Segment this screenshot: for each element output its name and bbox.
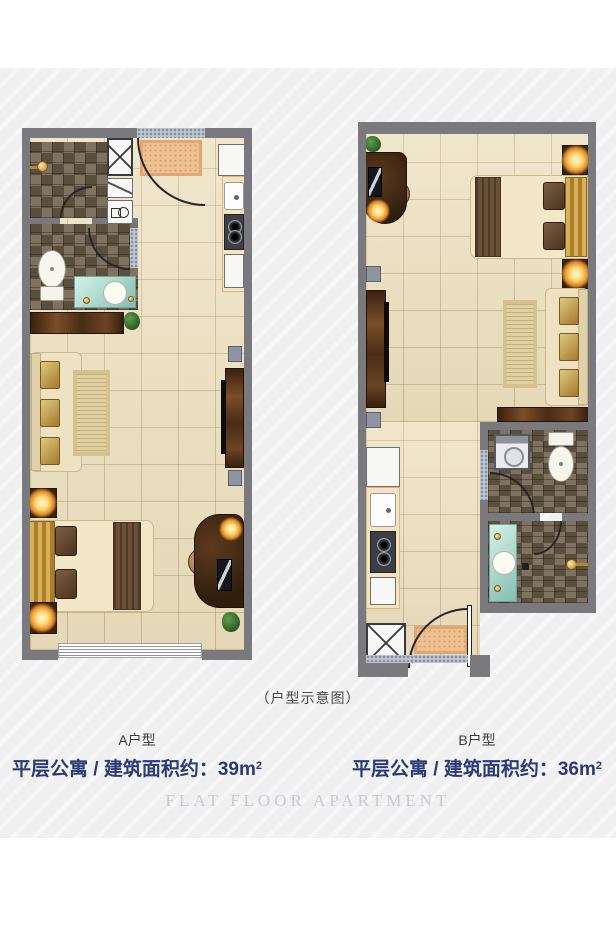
pillow-icon xyxy=(55,526,77,556)
pillow-icon xyxy=(559,369,579,397)
wall xyxy=(244,128,252,660)
unit-b-area-sup: 2 xyxy=(596,760,602,772)
footer-title: FLAT FLOOR APARTMENT xyxy=(0,791,616,811)
wall xyxy=(488,513,540,521)
tv-cabinet-a xyxy=(225,368,244,468)
wall xyxy=(480,603,596,613)
unit-b-name: B户型 xyxy=(357,730,597,750)
unit-b-area: 36m xyxy=(558,759,596,780)
unit-a-area: 39m xyxy=(218,759,256,780)
nightstand xyxy=(562,259,590,289)
wall xyxy=(470,655,490,677)
unit-b-desc: 平层公寓 / 建筑面积约： xyxy=(352,759,558,780)
pillow-icon xyxy=(543,222,565,250)
lamp-glow-icon xyxy=(27,488,57,518)
monitor-icon xyxy=(217,559,232,591)
bath-divider-wall-a xyxy=(30,218,60,224)
candle-icon xyxy=(494,533,501,540)
plant-icon xyxy=(222,612,240,632)
candle-icon xyxy=(494,585,501,592)
bed-a xyxy=(28,520,154,612)
shower-head-icon xyxy=(37,161,48,172)
toilet-icon xyxy=(38,250,66,288)
plant-icon xyxy=(124,312,140,330)
sofa-b xyxy=(545,288,589,406)
basin-icon xyxy=(103,281,127,305)
wall xyxy=(22,128,30,660)
fridge-icon xyxy=(366,447,400,487)
bath-door-threshold-a xyxy=(130,228,138,268)
stove-icon xyxy=(370,531,396,573)
desk-a xyxy=(194,514,244,608)
speaker-icon xyxy=(228,346,242,362)
wall xyxy=(202,650,252,660)
plan-caption: （户型示意图） xyxy=(0,688,616,708)
lamp-glow-icon xyxy=(366,199,390,223)
shoe-shelf-icon xyxy=(107,178,133,198)
tv-icon xyxy=(384,302,389,382)
floor-plan-b xyxy=(358,122,596,680)
kitchen-sink-icon xyxy=(370,493,396,527)
vanity-sink-b xyxy=(489,524,517,602)
wall xyxy=(588,122,596,613)
shower-arm-icon xyxy=(576,563,588,566)
pillow-icon xyxy=(55,569,77,599)
wall xyxy=(358,122,596,134)
headboard-quilt xyxy=(29,521,55,611)
candle-icon xyxy=(83,297,90,304)
monitor-icon xyxy=(368,167,382,197)
nightstand xyxy=(562,145,590,175)
blanket-band xyxy=(475,177,501,257)
sideboard-b xyxy=(497,407,589,422)
window-icon xyxy=(58,643,202,658)
basin-icon xyxy=(492,551,516,575)
floor-plan-a xyxy=(22,128,252,660)
toilet-tank xyxy=(40,286,64,301)
blanket-band xyxy=(113,522,141,610)
speaker-icon xyxy=(228,470,242,486)
candle-icon xyxy=(128,296,134,302)
wall xyxy=(480,422,596,430)
desk-b xyxy=(363,152,407,224)
wall xyxy=(22,128,137,138)
fridge-icon xyxy=(218,144,246,176)
lamp-glow-icon xyxy=(27,603,57,633)
kitchen-sink-icon xyxy=(224,182,244,210)
entry-threshold-b xyxy=(366,655,468,663)
lamp-glow-icon xyxy=(219,517,243,541)
wall xyxy=(358,122,366,677)
unit-a-area-sup: 2 xyxy=(256,760,262,772)
kitchen-cabinet xyxy=(370,577,396,605)
unit-a-name: A户型 xyxy=(17,730,257,750)
unit-a-area-line: 平层公寓 / 建筑面积约：39m2 xyxy=(7,754,267,781)
entry-threshold-a xyxy=(137,128,205,138)
sideboard-a xyxy=(30,312,124,334)
pillow-icon xyxy=(40,361,60,389)
pillow-icon xyxy=(40,399,60,427)
toilet-tank xyxy=(548,432,574,446)
vanity-sink-a xyxy=(74,276,136,308)
plant-icon xyxy=(365,136,381,152)
pillow-icon xyxy=(40,437,60,465)
headboard-quilt xyxy=(565,177,587,257)
unit-a-desc: 平层公寓 / 建筑面积约： xyxy=(12,759,218,780)
kitchen-cabinet xyxy=(224,254,244,288)
toilet-icon xyxy=(548,446,574,482)
lamp-glow-icon xyxy=(561,145,591,175)
stove-icon xyxy=(224,214,244,250)
nightstand xyxy=(27,602,57,634)
wall xyxy=(480,422,488,450)
tv-icon xyxy=(221,380,226,454)
tv-cabinet-b xyxy=(366,290,386,408)
wardrobe-icon xyxy=(107,138,133,176)
bath-door-threshold-b xyxy=(480,450,488,500)
pillow-icon xyxy=(543,182,565,210)
wall xyxy=(358,663,408,677)
speaker-icon xyxy=(366,266,381,282)
wall xyxy=(562,513,588,521)
pillow-icon xyxy=(559,297,579,325)
rug-b xyxy=(503,300,537,388)
wash-unit-icon xyxy=(107,200,133,224)
bed-b xyxy=(470,175,588,259)
wall xyxy=(22,650,58,660)
unit-b-area-line: 平层公寓 / 建筑面积约：36m2 xyxy=(347,754,607,781)
rug-a xyxy=(73,370,110,456)
nightstand xyxy=(27,488,57,518)
speaker-icon xyxy=(366,412,381,428)
sofa-backrest xyxy=(578,289,588,405)
wall xyxy=(480,500,488,613)
drain-icon xyxy=(522,563,529,570)
washing-machine-icon xyxy=(494,434,530,470)
lamp-glow-icon xyxy=(561,259,591,289)
pillow-icon xyxy=(559,333,579,361)
